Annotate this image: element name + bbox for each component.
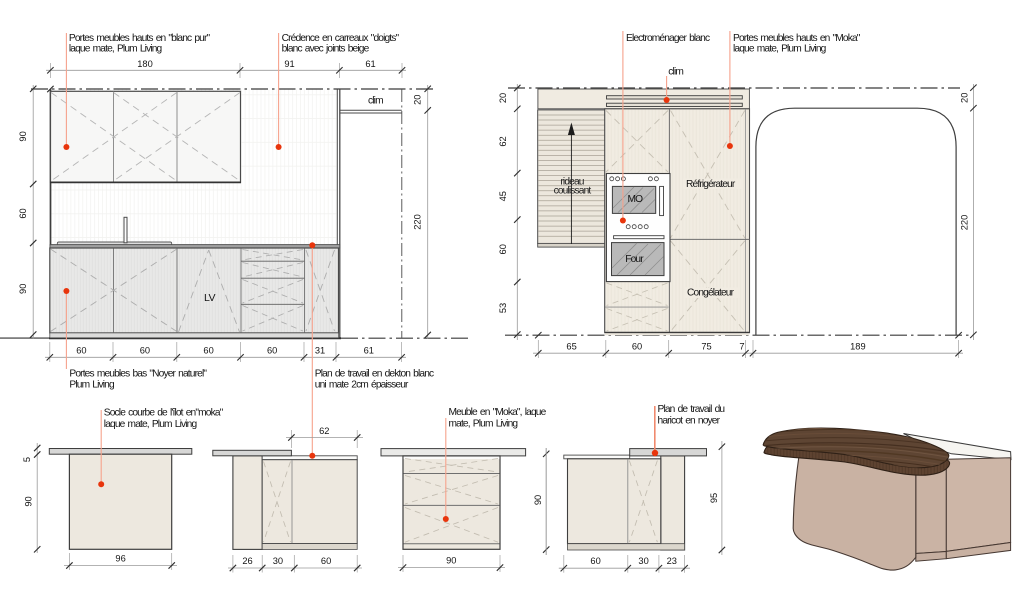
svg-text:91: 91 (284, 59, 294, 69)
svg-text:Plan de travail du: Plan de travail du (658, 404, 725, 415)
svg-text:90: 90 (24, 496, 34, 506)
svg-text:45: 45 (498, 191, 508, 201)
svg-text:65: 65 (566, 342, 576, 352)
svg-text:60: 60 (203, 346, 213, 356)
svg-text:Plum Living: Plum Living (69, 380, 115, 391)
svg-text:Crédence en carreaux "doigts": Crédence en carreaux "doigts" (282, 33, 400, 44)
svg-text:5: 5 (22, 457, 32, 462)
svg-text:60: 60 (76, 346, 86, 356)
svg-text:180: 180 (137, 59, 153, 69)
svg-text:20: 20 (960, 93, 970, 103)
svg-text:96: 96 (115, 554, 125, 564)
svg-text:90: 90 (18, 284, 28, 294)
svg-text:61: 61 (365, 59, 375, 69)
svg-text:60: 60 (18, 208, 28, 218)
svg-text:60: 60 (321, 556, 331, 566)
svg-text:220: 220 (960, 215, 970, 231)
svg-text:95: 95 (709, 493, 719, 503)
svg-text:61: 61 (364, 346, 374, 356)
svg-text:Portes meubles hauts en "Moka": Portes meubles hauts en "Moka" (733, 33, 861, 44)
svg-text:mate, Plum Living: mate, Plum Living (449, 418, 519, 429)
svg-text:53: 53 (498, 303, 508, 313)
svg-text:Portes meubles hauts en "blanc: Portes meubles hauts en "blanc pur" (69, 33, 211, 44)
svg-text:laque mate, Plum Living: laque mate, Plum Living (104, 419, 198, 430)
svg-text:laque mate, Plum Living: laque mate, Plum Living (733, 44, 827, 55)
svg-text:220: 220 (413, 214, 423, 230)
svg-text:75: 75 (701, 342, 711, 352)
svg-text:31: 31 (315, 346, 325, 356)
svg-text:60: 60 (498, 244, 508, 254)
svg-text:62: 62 (319, 426, 329, 436)
svg-text:60: 60 (140, 346, 150, 356)
svg-text:laque mate, Plum Living: laque mate, Plum Living (69, 44, 163, 55)
svg-text:7: 7 (739, 342, 744, 352)
svg-text:Electroménager blanc: Electroménager blanc (626, 33, 710, 44)
svg-text:Four: Four (625, 254, 644, 265)
svg-text:Socle courbe de l'îlot en"moka: Socle courbe de l'îlot en"moka" (104, 408, 224, 419)
svg-text:30: 30 (638, 556, 648, 566)
svg-text:clim: clim (368, 96, 383, 107)
svg-text:coulissant: coulissant (554, 185, 592, 196)
svg-text:62: 62 (498, 136, 508, 146)
svg-text:23: 23 (667, 556, 677, 566)
svg-text:30: 30 (273, 556, 283, 566)
svg-text:189: 189 (850, 342, 866, 352)
svg-text:uni mate 2cm épaisseur: uni mate 2cm épaisseur (315, 380, 409, 391)
svg-text:LV: LV (204, 292, 216, 304)
svg-text:Meuble en "Moka", laque: Meuble en "Moka", laque (449, 407, 547, 418)
svg-text:Congélateur: Congélateur (687, 288, 735, 299)
svg-text:haricot en noyer: haricot en noyer (658, 415, 721, 426)
svg-text:60: 60 (632, 342, 642, 352)
svg-text:20: 20 (413, 95, 423, 105)
svg-text:Portes meubles bas "Noyer natu: Portes meubles bas "Noyer naturel" (69, 368, 207, 379)
svg-text:90: 90 (533, 495, 543, 505)
svg-text:60: 60 (267, 346, 277, 356)
svg-text:blanc avec joints beige: blanc avec joints beige (282, 44, 370, 55)
svg-text:90: 90 (18, 131, 28, 141)
svg-text:Plan de travail en dekton blan: Plan de travail en dekton blanc (315, 368, 434, 379)
svg-text:MO: MO (627, 194, 643, 205)
svg-text:clim: clim (668, 66, 683, 77)
svg-text:20: 20 (498, 93, 508, 103)
svg-text:Réfrigérateur: Réfrigérateur (686, 179, 736, 190)
svg-text:60: 60 (590, 556, 600, 566)
svg-text:90: 90 (446, 556, 456, 566)
svg-text:26: 26 (242, 556, 252, 566)
